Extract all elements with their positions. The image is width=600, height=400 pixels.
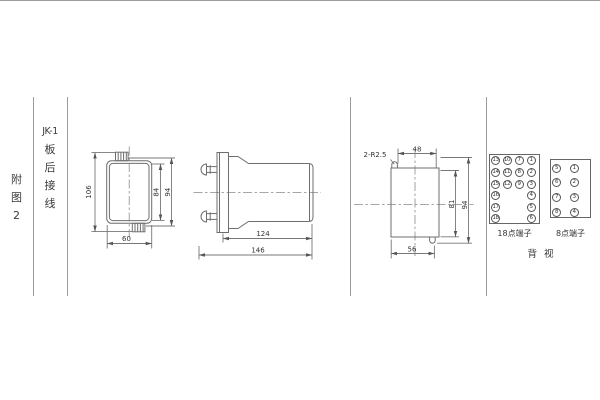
terminal-point-7: 7 [515,156,524,165]
table-border-v3 [350,97,351,296]
terminal-point-8: 8 [515,168,524,177]
terminal-block-18-label: 18点端子 [487,228,542,239]
dimension-146: 146 [199,246,312,260]
terminal-screw-lower [201,211,217,222]
title-char: 板 [33,141,67,159]
terminal-point-3: 3 [570,193,579,202]
terminal-point-13: 13 [491,156,500,165]
terminal-point-2: 2 [570,178,579,187]
dimension-124: 124 [223,224,312,260]
top-stud [116,152,129,161]
terminal-point-6: 6 [527,214,536,223]
terminal-point-11: 11 [503,168,512,177]
drawing-sheet: 附 图 2 JK-1 板 后 接 线 [0,0,600,400]
terminal-point-1: 1 [570,164,579,173]
table-border-bottom [0,0,600,1]
terminal-point-8: 8 [552,208,561,217]
terminal-point-2: 2 [527,168,536,177]
dim-label-94-panel: 94 [461,200,469,209]
figure-number: 附 图 2 [0,171,33,225]
rear-view-label: 背 视 [514,246,569,260]
side-view-drawing: 124 146 [192,144,324,262]
terminal-point-5: 5 [552,164,561,173]
dimension-56: 56 [391,240,434,259]
slot-radius-label: 2-R2.5 [364,151,387,159]
bottom-stud [132,223,145,232]
terminal-screw-upper [201,164,217,175]
figure-number-char: 2 [0,207,33,225]
terminal-point-3: 3 [527,180,536,189]
terminal-point-7: 7 [552,193,561,202]
dim-label-94: 94 [164,187,172,196]
title-char: 后 [33,159,67,177]
terminal-block-18: 131415161718101112789123456 [489,154,540,224]
terminal-point-5: 5 [527,203,536,212]
title-char: 接 [33,177,67,195]
dimension-81: 81 [441,171,460,237]
dimension-48: 48 [398,145,436,167]
drawing-title: JK-1 板 后 接 线 [33,123,67,213]
dimension-84: 84 [152,164,165,220]
figure-number-char: 附 [0,171,33,189]
terminal-block-8-label: 8点端子 [546,228,595,239]
figure-number-char: 图 [0,189,33,207]
dim-label-146: 146 [251,247,265,255]
panel-cutout-drawing: 2-R2.5 48 81 94 56 [352,142,478,264]
dim-label-81: 81 [448,200,456,209]
terminal-point-15: 15 [491,180,500,189]
dim-label-124: 124 [256,230,270,238]
terminal-point-17: 17 [491,203,500,212]
terminal-point-14: 14 [491,168,500,177]
dim-label-48: 48 [413,145,422,153]
dim-label-60: 60 [122,235,131,243]
terminal-block-8: 56781234 [550,159,591,218]
terminal-point-4: 4 [527,191,536,200]
terminal-point-12: 12 [503,180,512,189]
slot-radius-callout: 2-R2.5 [364,151,395,164]
terminal-point-10: 10 [503,156,512,165]
front-view-drawing: 106 84 94 60 [78,139,182,253]
slot-bottom-right [430,237,436,244]
terminal-point-1: 1 [527,156,536,165]
terminal-point-6: 6 [552,178,561,187]
title-char: 线 [33,195,67,213]
dim-label-56: 56 [408,245,417,253]
model-label: JK-1 [33,123,67,141]
terminal-point-9: 9 [515,180,524,189]
terminal-point-16: 16 [491,191,500,200]
table-border-v2 [67,97,68,296]
dimension-106: 106 [85,153,132,232]
dim-label-106: 106 [85,185,93,199]
terminal-point-18: 18 [491,214,500,223]
table-border-v4 [486,97,487,296]
dim-label-84: 84 [153,187,161,196]
terminal-point-4: 4 [570,208,579,217]
